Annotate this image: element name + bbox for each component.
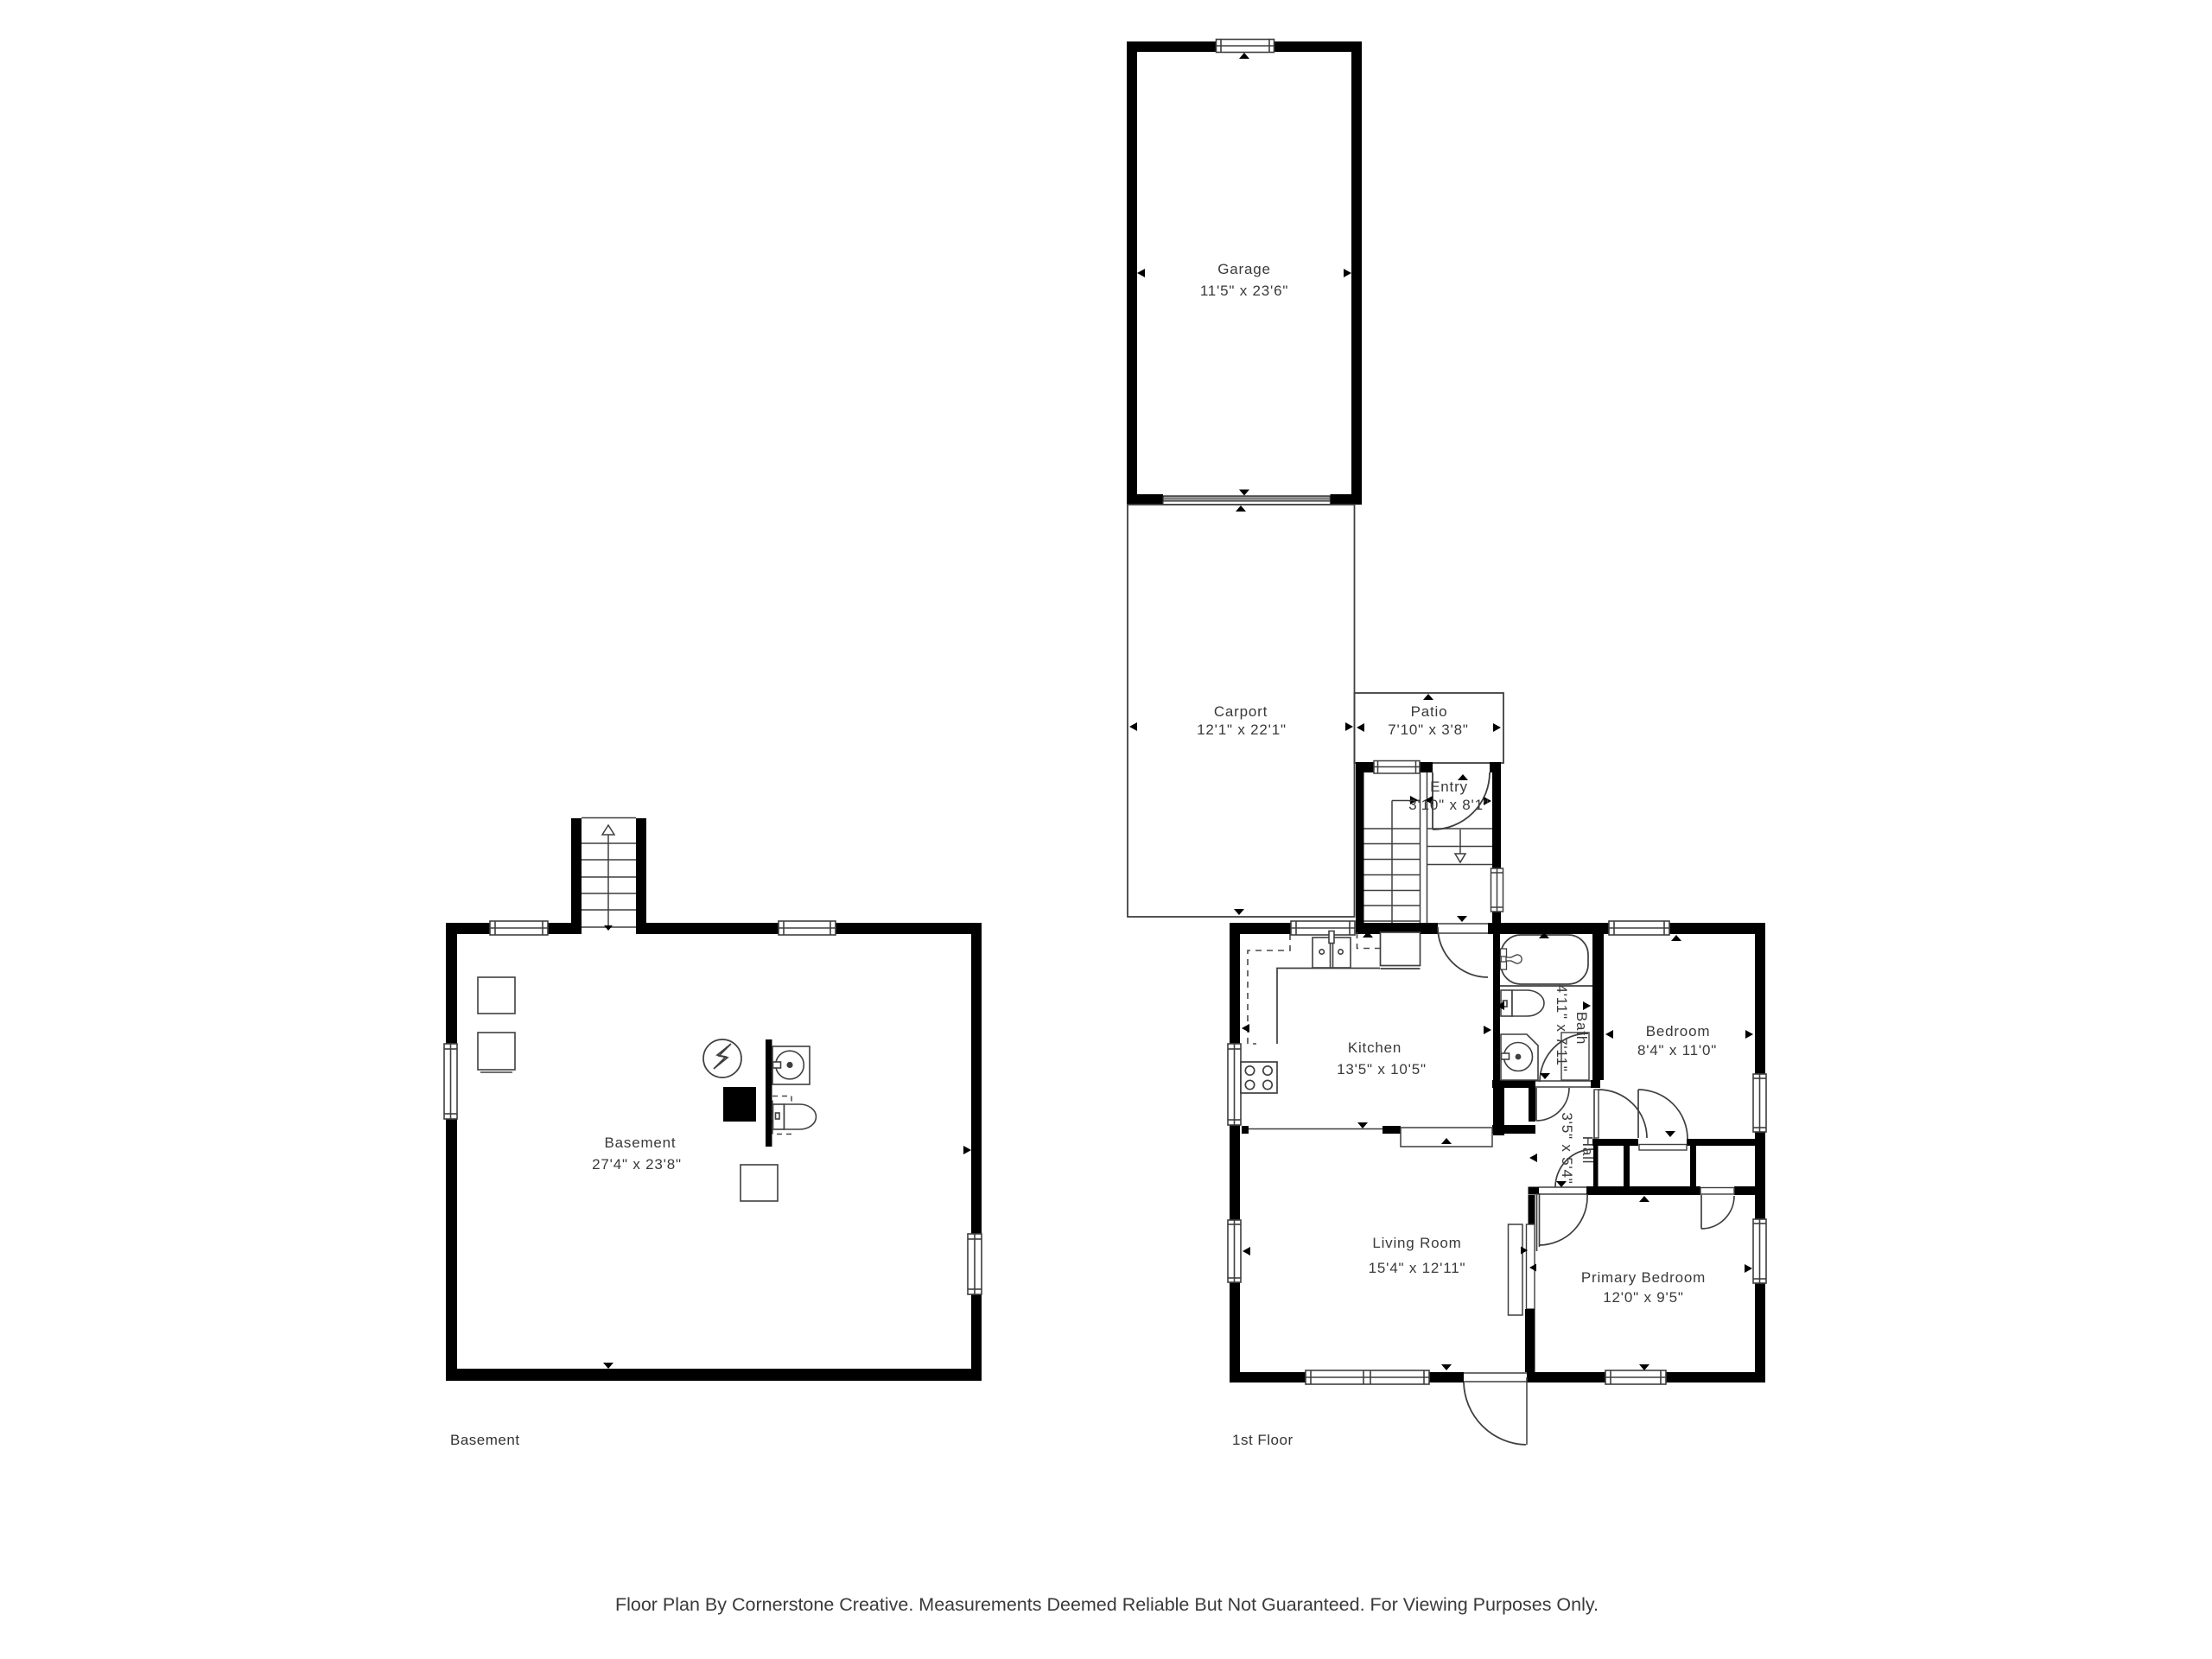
svg-text:15'4" x 12'11": 15'4" x 12'11" xyxy=(1369,1260,1466,1276)
svg-text:Patio: Patio xyxy=(1411,703,1448,720)
svg-text:Entry: Entry xyxy=(1430,779,1468,795)
svg-text:Basement: Basement xyxy=(605,1135,677,1151)
svg-text:Garage: Garage xyxy=(1217,261,1271,277)
svg-text:Basement: Basement xyxy=(450,1432,520,1448)
svg-text:13'5" x 10'5": 13'5" x 10'5" xyxy=(1337,1061,1427,1077)
svg-text:3'10" x 8'1": 3'10" x 8'1" xyxy=(1408,797,1489,813)
svg-text:Bath: Bath xyxy=(1573,1012,1590,1045)
svg-text:11'5" x 23'6": 11'5" x 23'6" xyxy=(1200,283,1288,299)
svg-text:8'4" x 11'0": 8'4" x 11'0" xyxy=(1637,1042,1717,1058)
svg-text:12'0" x 9'5": 12'0" x 9'5" xyxy=(1603,1289,1683,1306)
svg-text:7'10" x 3'8": 7'10" x 3'8" xyxy=(1388,721,1468,738)
svg-text:27'4" x 23'8": 27'4" x 23'8" xyxy=(592,1156,682,1173)
svg-text:1st Floor: 1st Floor xyxy=(1232,1432,1294,1448)
svg-text:Hall: Hall xyxy=(1580,1136,1596,1165)
svg-text:12'1" x 22'1": 12'1" x 22'1" xyxy=(1197,721,1287,738)
svg-text:Living Room: Living Room xyxy=(1372,1235,1461,1251)
svg-text:Floor Plan By Cornerstone Crea: Floor Plan By Cornerstone Creative. Meas… xyxy=(615,1594,1599,1615)
svg-text:Kitchen: Kitchen xyxy=(1348,1039,1402,1056)
svg-text:Carport: Carport xyxy=(1214,703,1268,720)
svg-text:4'11" x 7'11": 4'11" x 7'11" xyxy=(1554,984,1570,1071)
svg-text:3'5" x 5'4": 3'5" x 5'4" xyxy=(1559,1112,1575,1184)
svg-text:Bedroom: Bedroom xyxy=(1646,1023,1711,1039)
svg-text:Primary Bedroom: Primary Bedroom xyxy=(1581,1269,1706,1286)
